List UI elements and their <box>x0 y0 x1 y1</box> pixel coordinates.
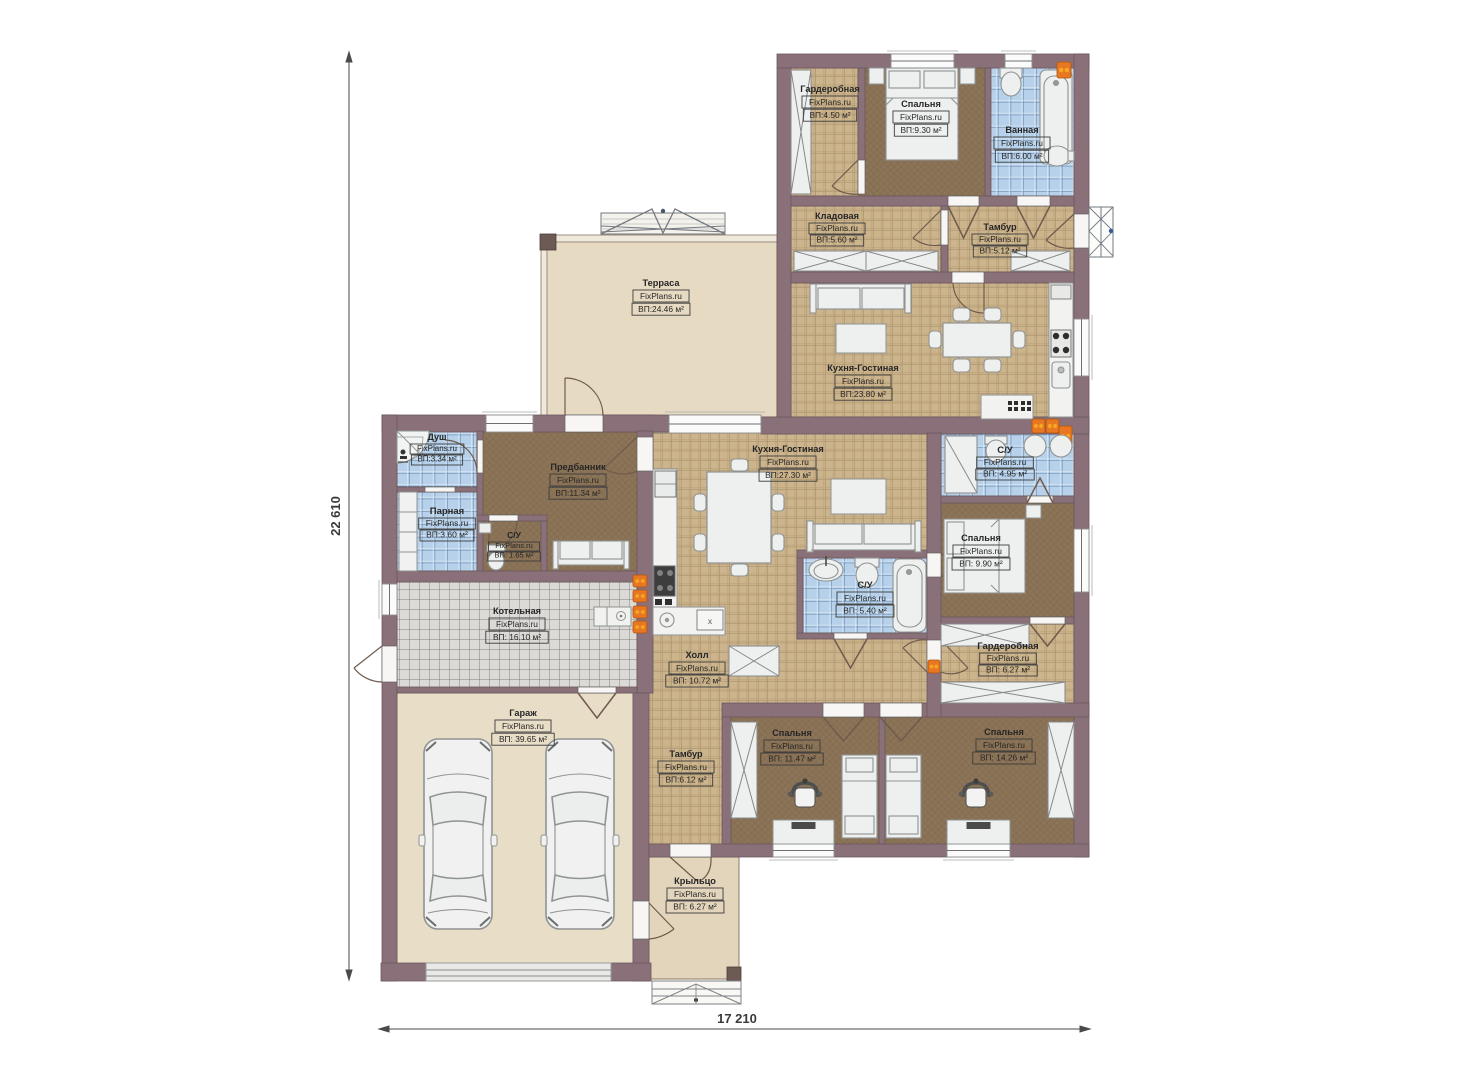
svg-text:ВП:6.12 м²: ВП:6.12 м² <box>665 775 706 785</box>
svg-text:ВП:5.12 м²: ВП:5.12 м² <box>979 246 1020 256</box>
svg-text:Спальня: Спальня <box>772 728 812 738</box>
svg-text:FixPlans.ru: FixPlans.ru <box>640 291 682 301</box>
svg-text:22 610: 22 610 <box>328 496 343 536</box>
svg-text:FixPlans.ru: FixPlans.ru <box>674 889 716 899</box>
svg-text:Спальня: Спальня <box>961 533 1001 543</box>
svg-text:FixPlans.ru: FixPlans.ru <box>984 457 1027 467</box>
svg-text:ВП:27.30 м²: ВП:27.30 м² <box>765 470 811 480</box>
svg-text:ВП: 4.95 м²: ВП: 4.95 м² <box>983 469 1027 479</box>
svg-text:ВП:6.00 м²: ВП:6.00 м² <box>1001 151 1042 161</box>
svg-text:ВП: 16.10 м²: ВП: 16.10 м² <box>493 632 541 642</box>
svg-text:ВП:9.30 м²: ВП:9.30 м² <box>900 125 941 135</box>
svg-text:ВП: 1.65 м²: ВП: 1.65 м² <box>495 551 534 560</box>
svg-text:FixPlans.ru: FixPlans.ru <box>502 721 544 731</box>
svg-text:FixPlans.ru: FixPlans.ru <box>844 593 886 603</box>
svg-text:Гардеробная: Гардеробная <box>977 641 1038 652</box>
svg-text:FixPlans.ru: FixPlans.ru <box>809 97 851 107</box>
svg-text:FixPlans.ru: FixPlans.ru <box>900 112 942 122</box>
svg-text:FixPlans.ru: FixPlans.ru <box>1001 138 1043 148</box>
svg-text:ВП: 6.27 м²: ВП: 6.27 м² <box>673 902 717 912</box>
svg-text:С/У: С/У <box>858 580 873 590</box>
svg-text:ВП:23.80 м²: ВП:23.80 м² <box>840 389 886 399</box>
svg-text:ВП: 14.26 м²: ВП: 14.26 м² <box>980 753 1028 763</box>
svg-text:ВП: 6.27 м²: ВП: 6.27 м² <box>986 665 1030 675</box>
svg-text:ВП:11.34 м²: ВП:11.34 м² <box>555 488 600 498</box>
svg-text:FixPlans.ru: FixPlans.ru <box>496 619 538 629</box>
svg-text:FixPlans.ru: FixPlans.ru <box>767 457 809 467</box>
svg-text:FixPlans.ru: FixPlans.ru <box>417 444 457 453</box>
svg-text:Тамбур: Тамбур <box>669 749 703 759</box>
svg-text:FixPlans.ru: FixPlans.ru <box>842 376 884 386</box>
svg-text:Гараж: Гараж <box>509 708 537 718</box>
svg-text:ВП: 11.47 м²: ВП: 11.47 м² <box>768 754 816 764</box>
svg-text:Душ: Душ <box>427 432 446 442</box>
svg-text:ВП: 5.40 м²: ВП: 5.40 м² <box>843 606 887 616</box>
svg-text:ВП: 9.90 м²: ВП: 9.90 м² <box>959 559 1003 569</box>
svg-text:Котельная: Котельная <box>493 606 541 616</box>
svg-text:FixPlans.ru: FixPlans.ru <box>979 234 1021 244</box>
svg-text:FixPlans.ru: FixPlans.ru <box>816 223 858 233</box>
svg-text:Кухня-Гостиная: Кухня-Гостиная <box>752 444 823 454</box>
svg-text:Гардеробная: Гардеробная <box>800 84 859 94</box>
svg-text:17 210: 17 210 <box>717 1011 757 1026</box>
svg-text:Холл: Холл <box>685 650 708 660</box>
svg-text:ВП:24.46 м²: ВП:24.46 м² <box>638 304 684 314</box>
svg-text:ВП: 10.72 м²: ВП: 10.72 м² <box>673 676 721 686</box>
svg-text:FixPlans.ru: FixPlans.ru <box>771 741 813 751</box>
svg-text:FixPlans.ru: FixPlans.ru <box>676 663 718 673</box>
svg-text:Тамбур: Тамбур <box>983 222 1017 232</box>
svg-text:ВП:3.60 м²: ВП:3.60 м² <box>426 530 468 540</box>
svg-text:Предбанник: Предбанник <box>550 462 606 472</box>
svg-text:Кухня-Гостиная: Кухня-Гостиная <box>827 363 898 373</box>
svg-text:С/У: С/У <box>507 530 522 540</box>
svg-text:Спальня: Спальня <box>984 727 1024 737</box>
svg-text:FixPlans.ru: FixPlans.ru <box>987 653 1030 663</box>
svg-text:Спальня: Спальня <box>901 99 941 109</box>
svg-text:FixPlans.ru: FixPlans.ru <box>426 518 469 528</box>
svg-text:ВП: 39.65 м²: ВП: 39.65 м² <box>499 734 547 744</box>
svg-text:FixPlans.ru: FixPlans.ru <box>665 762 707 772</box>
svg-text:FixPlans.ru: FixPlans.ru <box>495 541 533 550</box>
svg-text:FixPlans.ru: FixPlans.ru <box>983 740 1025 750</box>
svg-text:Терраса: Терраса <box>643 278 681 288</box>
svg-text:Парная: Парная <box>430 506 464 517</box>
svg-text:Крыльцо: Крыльцо <box>674 876 716 886</box>
svg-text:ВП:4.50 м²: ВП:4.50 м² <box>809 110 850 120</box>
svg-text:ВП:5.60 м²: ВП:5.60 м² <box>816 235 857 245</box>
svg-text:FixPlans.ru: FixPlans.ru <box>960 546 1002 556</box>
svg-text:Кладовая: Кладовая <box>815 211 859 221</box>
svg-text:Ванная: Ванная <box>1005 125 1038 135</box>
svg-text:ВП:3.34 м²: ВП:3.34 м² <box>417 455 457 464</box>
svg-text:FixPlans.ru: FixPlans.ru <box>557 475 599 485</box>
svg-text:С/У: С/У <box>997 445 1013 456</box>
